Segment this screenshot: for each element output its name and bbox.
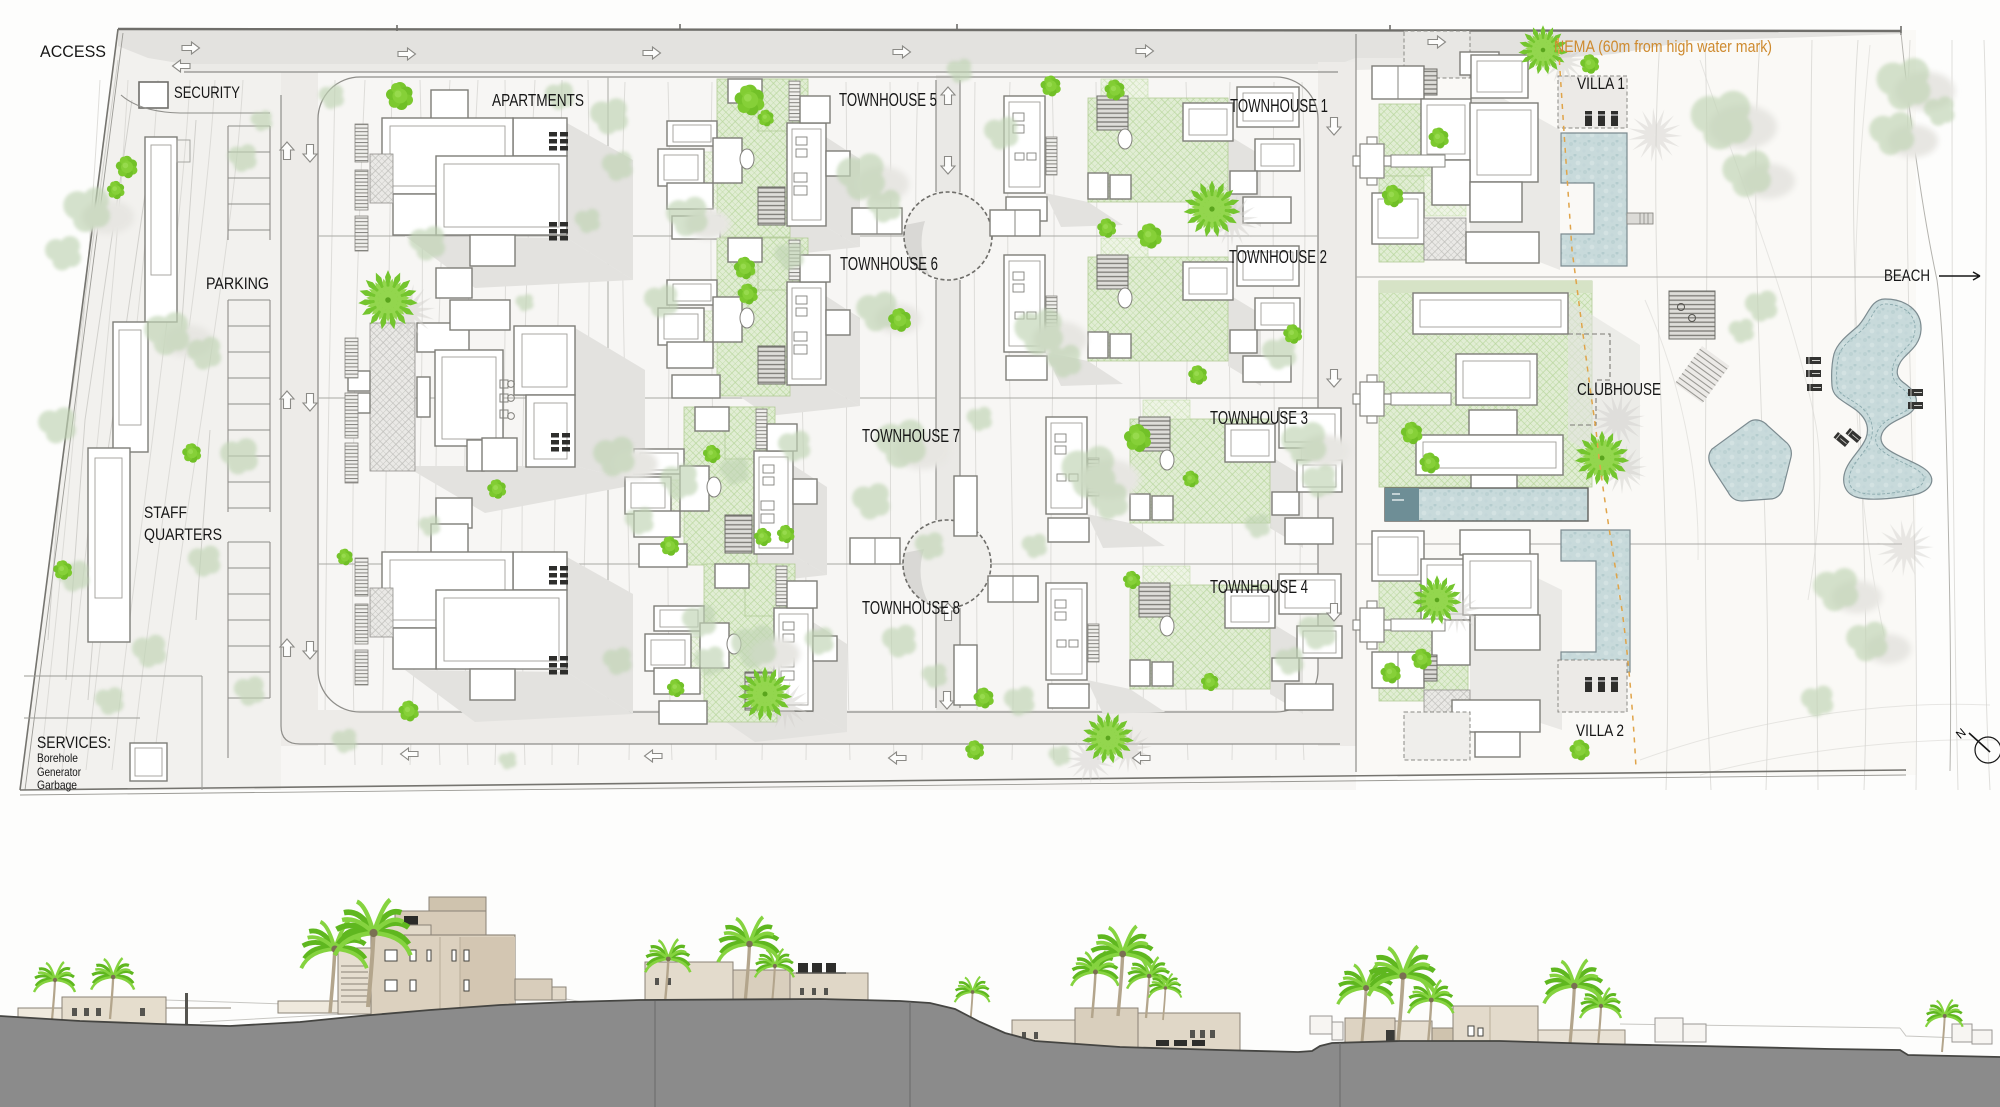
svg-text:VILLA 2: VILLA 2 (1576, 722, 1624, 740)
svg-text:TOWNHOUSE 5: TOWNHOUSE 5 (839, 90, 937, 110)
svg-text:TOWNHOUSE 7: TOWNHOUSE 7 (862, 426, 960, 446)
svg-text:SERVICES:: SERVICES: (37, 733, 111, 752)
svg-text:NEMA (60m from high water mark: NEMA (60m from high water mark) (1554, 38, 1772, 56)
svg-text:TOWNHOUSE 6: TOWNHOUSE 6 (840, 254, 938, 274)
svg-text:TOWNHOUSE 8: TOWNHOUSE 8 (862, 598, 960, 618)
svg-text:Garbage: Garbage (37, 778, 77, 792)
svg-text:TOWNHOUSE 2: TOWNHOUSE 2 (1229, 247, 1327, 267)
svg-text:Borehole: Borehole (37, 751, 78, 765)
svg-text:STAFF: STAFF (144, 503, 187, 522)
svg-text:QUARTERS: QUARTERS (144, 525, 222, 544)
svg-text:Generator: Generator (37, 765, 81, 779)
svg-text:SECURITY: SECURITY (174, 83, 240, 102)
svg-text:TOWNHOUSE 4: TOWNHOUSE 4 (1210, 577, 1308, 597)
svg-text:ACCESS: ACCESS (40, 42, 106, 61)
svg-text:APARTMENTS: APARTMENTS (492, 90, 584, 110)
svg-text:VILLA 1: VILLA 1 (1577, 75, 1625, 93)
svg-text:TOWNHOUSE 1: TOWNHOUSE 1 (1230, 96, 1328, 116)
svg-text:TOWNHOUSE 3: TOWNHOUSE 3 (1210, 408, 1308, 428)
svg-text:PARKING: PARKING (206, 274, 269, 293)
svg-text:BEACH: BEACH (1884, 267, 1930, 285)
